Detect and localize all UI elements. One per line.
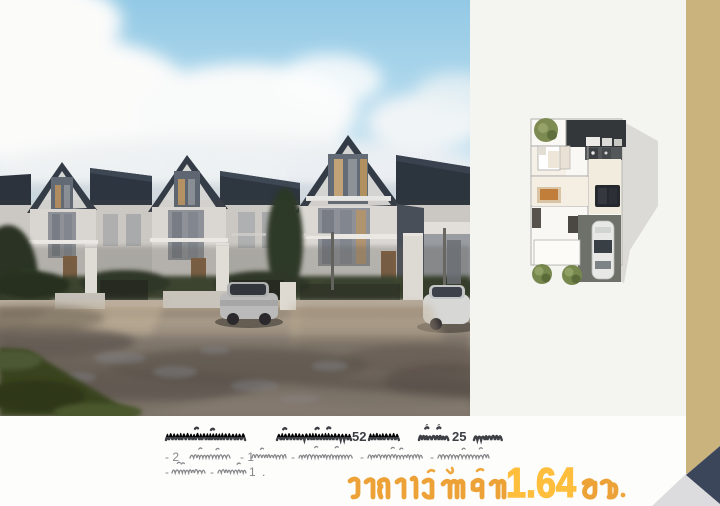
svg-text:- 1: - 1	[240, 450, 254, 464]
svg-text:-: -	[165, 465, 169, 479]
svg-text:1: 1	[249, 465, 256, 479]
svg-text:- 2: - 2	[165, 450, 179, 464]
svg-text:1.64: 1.64	[506, 459, 577, 506]
svg-text:.: .	[262, 465, 265, 479]
svg-text:-: -	[430, 450, 434, 464]
svg-text:-: -	[291, 450, 295, 464]
svg-text:52: 52	[352, 429, 366, 444]
svg-text:25: 25	[452, 429, 466, 444]
svg-text:-: -	[210, 465, 214, 479]
svg-text:-: -	[360, 450, 364, 464]
